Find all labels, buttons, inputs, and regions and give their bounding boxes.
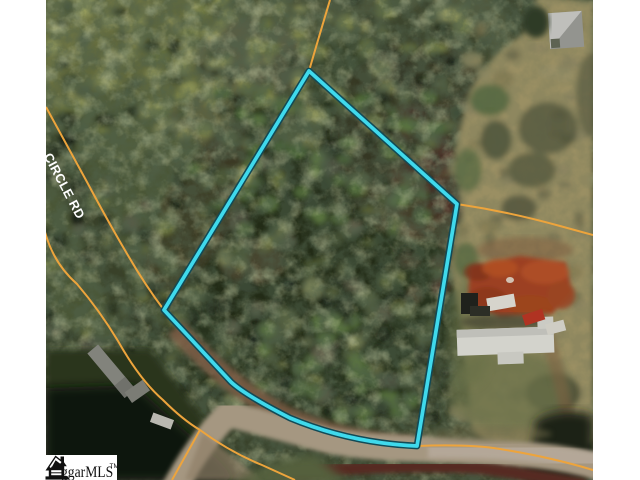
svg-text:ggarMLS: ggarMLS [61, 464, 113, 480]
svg-text:TM: TM [110, 463, 119, 470]
